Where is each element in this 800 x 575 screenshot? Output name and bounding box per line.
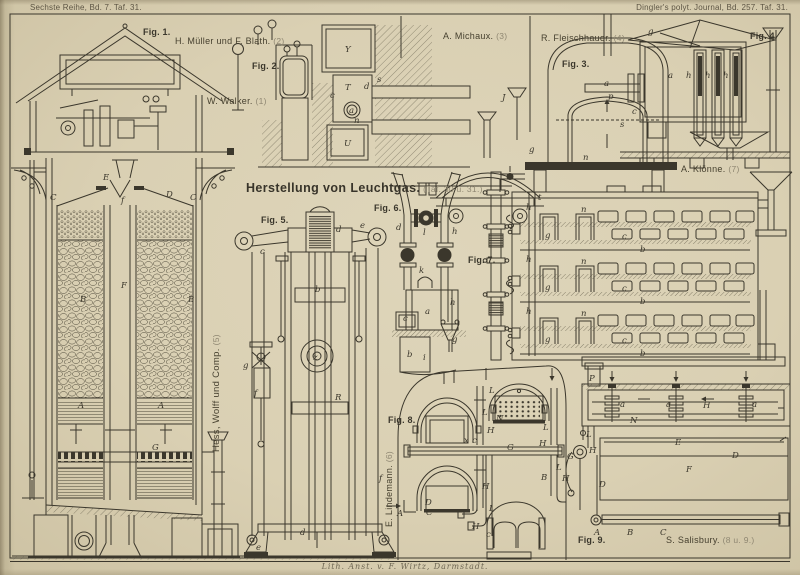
part-letter: c <box>486 530 491 540</box>
part-letter: a <box>752 400 757 410</box>
part-letter: g <box>545 283 551 293</box>
part-letter: n <box>581 257 586 267</box>
part-letter: E <box>102 173 110 183</box>
fig7-pipe-chain <box>483 172 509 360</box>
part-letter: d <box>336 225 342 235</box>
part-letter: h <box>686 71 691 81</box>
part-letter: n <box>581 205 586 215</box>
part-letter: H <box>561 474 570 484</box>
attribution-lindemann: E. Lindemann. (6) <box>384 451 394 527</box>
part-letter: H <box>486 426 495 436</box>
part-letter: P <box>588 374 595 384</box>
part-letter: n <box>581 309 586 319</box>
attribution-fleischhauer: R. Fleischhauer. (4) <box>541 33 625 43</box>
attribution-kloenne: A. Klönne. (7) <box>681 164 740 174</box>
part-letter: z <box>312 353 318 363</box>
part-letter: h <box>526 203 531 213</box>
part-letter: e <box>360 221 365 231</box>
part-letter: b <box>407 350 412 360</box>
part-letter: b <box>315 285 320 295</box>
fig8-furnace-drawing: L L N H x c G L H L B H A D C L H c <box>386 366 566 560</box>
part-letter: G <box>507 443 514 453</box>
part-letter: G <box>567 452 574 462</box>
part-letter: H <box>538 439 547 449</box>
fig1-drawing: C E f D C B F B A A G <box>11 24 240 557</box>
plate: C E f D C B F B A A G Y s d T c a n U <box>0 0 800 575</box>
part-letter: i <box>423 353 426 363</box>
plate-engraving: C E f D C B F B A A G Y s d T c a n U <box>0 0 800 575</box>
fig4-label: Fig. 4. <box>750 31 777 41</box>
part-letter: B <box>79 295 86 305</box>
header-journal: Dingler's polyt. Journal, Bd. 257. Taf. … <box>462 3 788 12</box>
attribution-walker: W. Walker. (1) <box>207 96 267 106</box>
fig8-label: Fig. 8. <box>388 415 415 425</box>
attribution-michaux: A. Michaux. (3) <box>443 31 507 41</box>
part-letter: x <box>464 436 469 446</box>
part-letter: h <box>526 307 531 317</box>
fig6-label: Fig. 6. <box>374 203 401 213</box>
part-letter: A <box>157 401 164 411</box>
fig7-label: Fig. 7. <box>468 255 495 265</box>
header-series: Sechste Reihe, Bd. 7. Taf. 31. <box>30 3 142 12</box>
part-letter: D <box>731 451 739 461</box>
part-letter: c <box>330 91 335 101</box>
part-letter: H <box>702 401 711 411</box>
part-letter: U <box>344 139 352 149</box>
fig2-label: Fig. 2. <box>252 61 279 71</box>
fig5-drawing: e d c b z g R f f d e <box>235 207 396 557</box>
fig1-label: Fig. 1. <box>143 27 170 37</box>
part-letter: h <box>452 227 457 237</box>
part-letter: s <box>620 120 625 130</box>
part-letter: s <box>377 75 382 85</box>
part-letter: G <box>152 443 159 453</box>
part-letter: g <box>243 361 249 371</box>
part-letter: h <box>705 71 710 81</box>
part-letter: l <box>423 228 426 238</box>
plate-title: Herstellung von Leuchtgas. (Taf. 30 u. 3… <box>246 181 483 195</box>
part-letter: D <box>598 480 606 490</box>
part-letter: a <box>668 71 673 81</box>
part-letter: J <box>500 93 506 103</box>
part-letter: L <box>481 408 488 418</box>
lithographer-credit: Lith. Anst. v. F. Wirtz, Darmstadt. <box>200 562 610 571</box>
part-letter: F <box>685 465 693 475</box>
part-letter: g <box>452 335 458 345</box>
part-letter: a <box>666 400 671 410</box>
part-letter: A <box>396 509 403 519</box>
part-letter: g <box>648 27 654 37</box>
part-letter: T <box>345 83 352 93</box>
attribution-hess-wolff: Hess, Wolff und Comp. (5) <box>211 334 222 452</box>
part-letter: H <box>471 522 480 532</box>
part-letter: C <box>190 193 197 203</box>
part-letter: Y <box>345 45 352 55</box>
retort-bolt <box>669 371 683 422</box>
part-letter: L <box>488 504 495 514</box>
fig7-drawing: t h n g c b h n g c b h n g c b <box>483 172 775 360</box>
part-letter: h <box>450 298 455 308</box>
part-letter: B <box>626 528 633 538</box>
part-letter: A <box>77 401 84 411</box>
retort-bolt <box>739 371 753 422</box>
part-letter: B <box>187 295 194 305</box>
part-letter: t <box>538 193 542 203</box>
part-letter: c <box>622 336 627 346</box>
part-letter: g <box>545 335 551 345</box>
part-letter: c <box>632 107 637 117</box>
part-letter: H <box>481 482 490 492</box>
part-letter: C <box>50 193 57 203</box>
part-letter: d <box>396 223 402 233</box>
part-letter: D <box>424 498 432 508</box>
attribution-mueller-blath: H. Müller und F. Blath. (2) <box>175 36 285 46</box>
fig5-label: Fig. 5. <box>261 215 288 225</box>
part-letter: B <box>540 473 547 483</box>
part-letter: g <box>529 145 535 155</box>
part-letter: e <box>256 543 261 553</box>
retort-bolt <box>605 371 619 422</box>
attribution-salisbury: S. Salisbury. (8 u. 9.) <box>666 535 755 545</box>
part-letter: L <box>585 430 592 440</box>
part-letter: L <box>555 463 562 473</box>
part-letter: d <box>300 528 306 538</box>
part-letter: g <box>545 231 551 241</box>
part-letter: H <box>588 446 597 456</box>
part-letter: L <box>542 423 549 433</box>
part-letter: N <box>495 414 504 424</box>
fig8-bench-drawing: P a N a H a E D L G H H D F <box>561 357 790 515</box>
part-letter: L <box>488 386 495 396</box>
part-letter: d <box>364 82 370 92</box>
part-letter: C <box>426 508 433 518</box>
fig6-drawing: l d h k a h c b g i <box>391 172 512 375</box>
part-letter: a <box>349 106 354 116</box>
part-letter: c <box>622 284 627 294</box>
fig3-label: Fig. 3. <box>562 59 589 69</box>
part-letter: F <box>120 281 128 291</box>
part-letter: f <box>120 196 126 206</box>
part-letter: h <box>526 255 531 265</box>
part-letter: a <box>620 400 625 410</box>
part-letter: a <box>425 307 430 317</box>
part-letter: b <box>640 245 645 255</box>
part-letter: c <box>403 314 408 324</box>
part-letter: b <box>640 297 645 307</box>
part-letter: p <box>608 92 614 102</box>
part-letter: c <box>260 247 265 257</box>
part-letter: h <box>723 71 728 81</box>
part-letter: R <box>334 393 342 403</box>
part-letter: k <box>419 266 424 276</box>
fig9-label: Fig. 9. <box>578 535 605 545</box>
part-letter: n <box>583 153 588 163</box>
part-letter: D <box>165 190 173 200</box>
part-letter: c <box>622 232 627 242</box>
part-letter: N <box>629 416 638 426</box>
part-letter: n <box>354 116 359 126</box>
fig4-drawing: g a h h h p c <box>585 20 792 236</box>
part-letter: E <box>674 438 682 448</box>
part-letter: c <box>472 436 477 446</box>
